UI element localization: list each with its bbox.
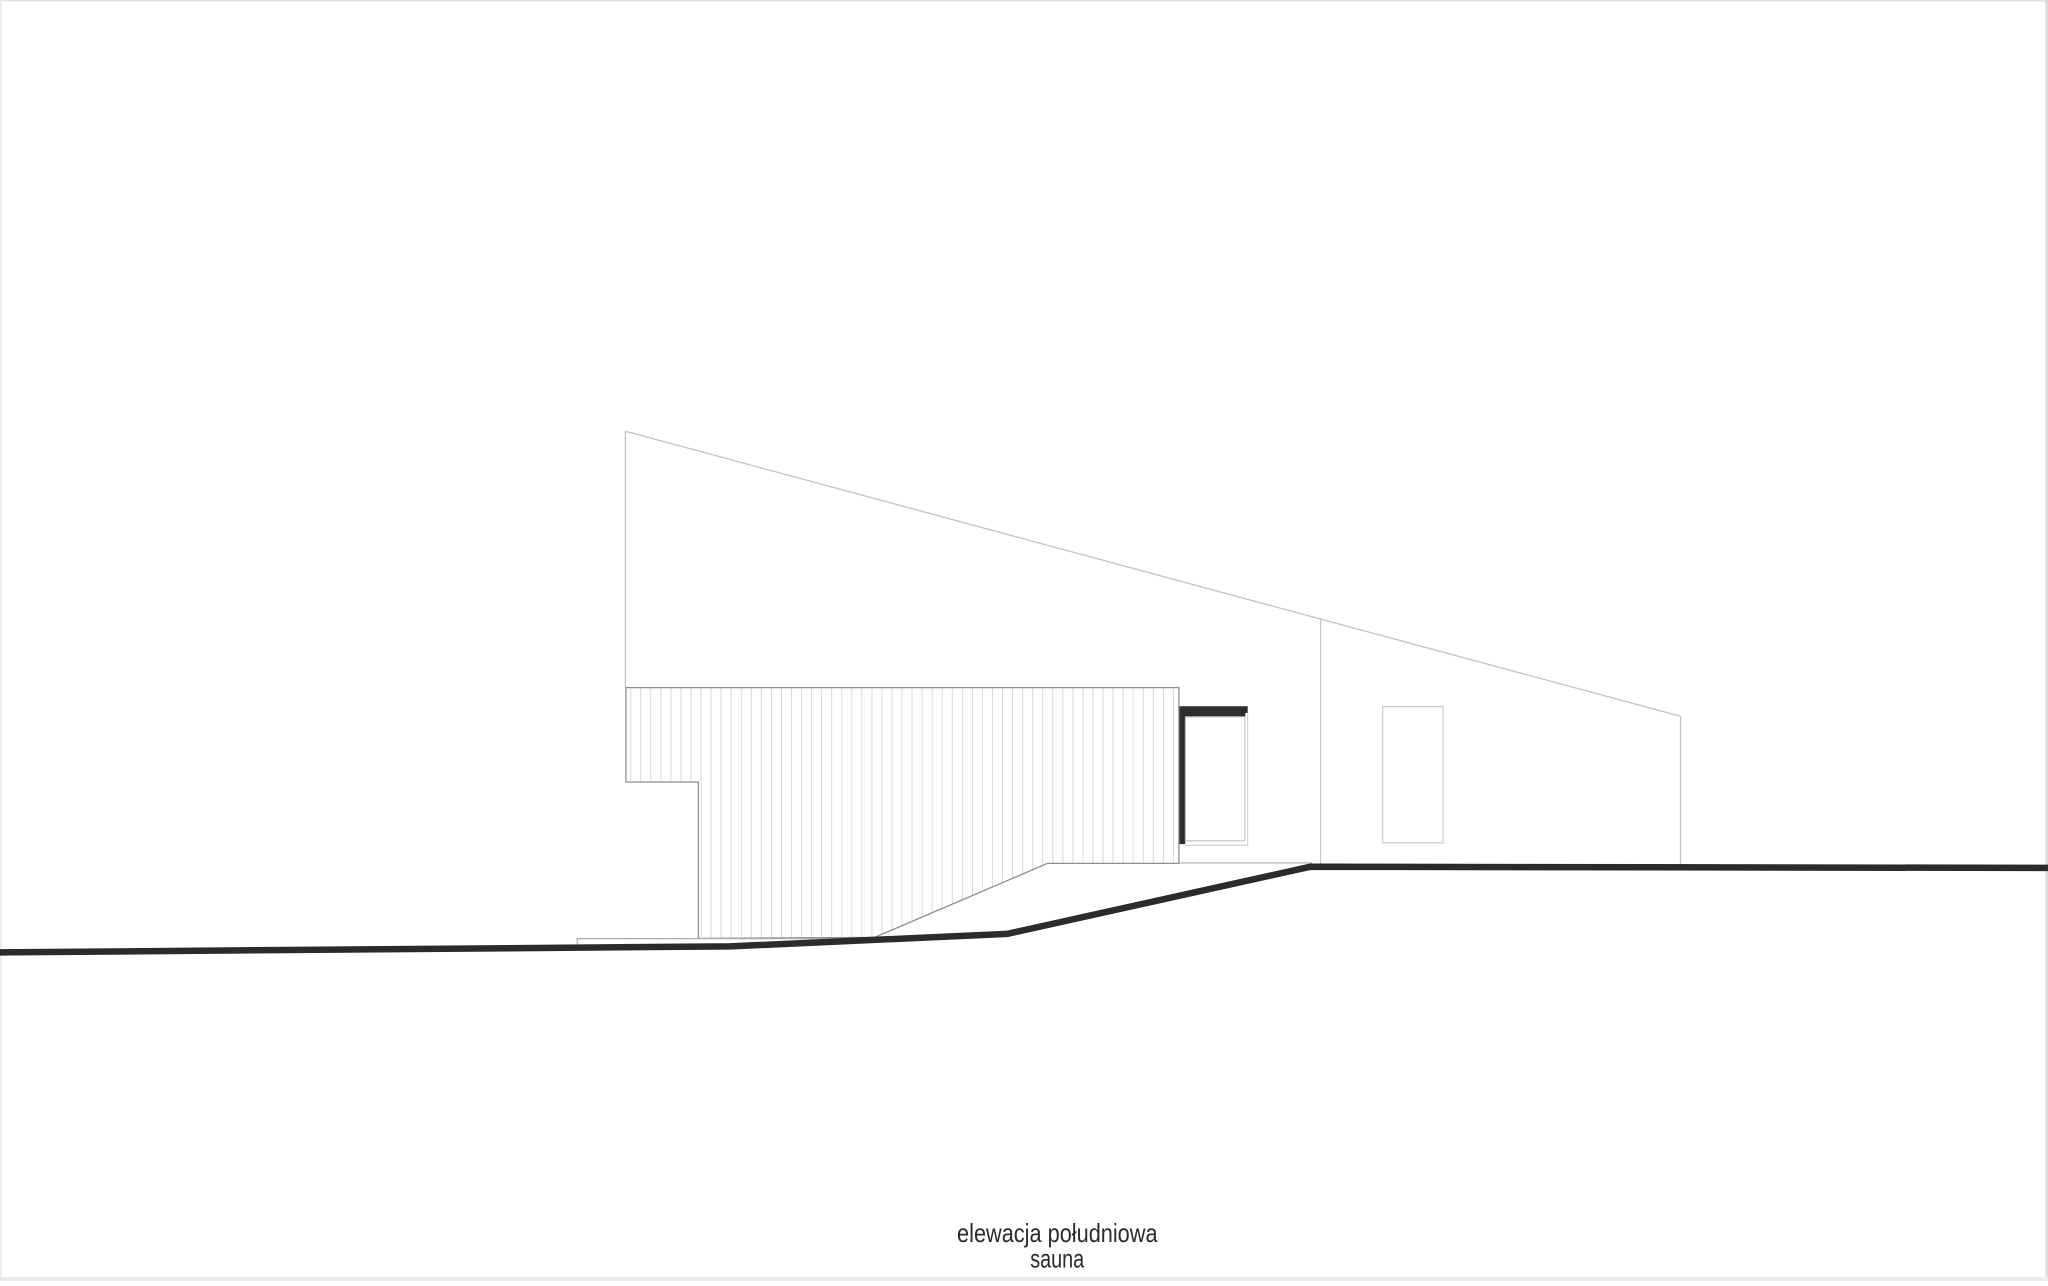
svg-text:sauna: sauna <box>1030 1243 1084 1273</box>
